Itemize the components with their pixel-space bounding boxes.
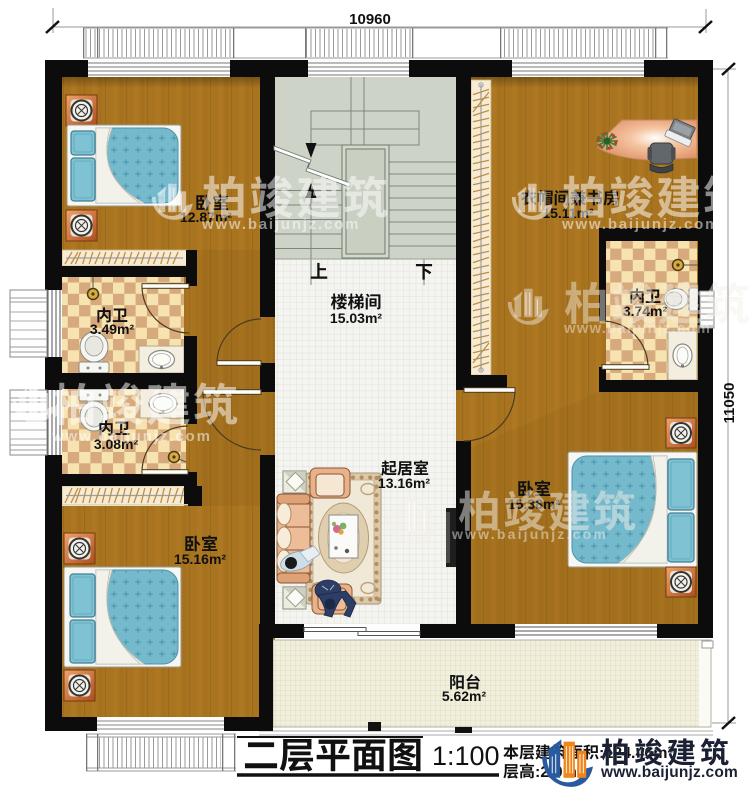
svg-text:1:100: 1:100 [432, 741, 500, 771]
svg-text:13.16m²: 13.16m² [378, 475, 430, 491]
svg-text:5.62m²: 5.62m² [442, 688, 487, 704]
svg-text:www.baijunjz.com: www.baijunjz.com [201, 216, 360, 233]
svg-text:www.baijunjz.com: www.baijunjz.com [563, 320, 711, 337]
svg-text:11050: 11050 [721, 383, 738, 424]
svg-text:www.baijunjz.com: www.baijunjz.com [600, 764, 738, 781]
svg-text:15.03m²: 15.03m² [330, 310, 382, 326]
svg-text:www.baijunjz.com: www.baijunjz.com [561, 216, 720, 233]
svg-text:15.16m²: 15.16m² [174, 551, 226, 567]
svg-text:www.baijunjz.com: www.baijunjz.com [451, 526, 608, 542]
svg-text:10960: 10960 [349, 11, 391, 28]
svg-text:3.49m²: 3.49m² [90, 321, 135, 337]
svg-text:www.baijunjz.com: www.baijunjz.com [51, 428, 212, 445]
